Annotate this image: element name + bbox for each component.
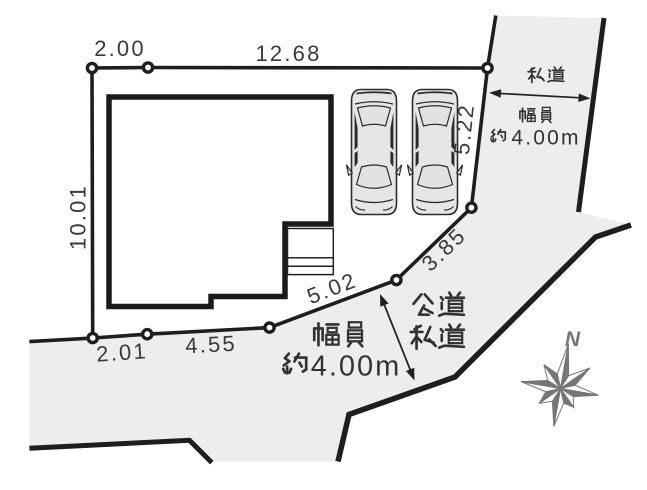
svg-text:2.00: 2.00 xyxy=(94,36,146,61)
svg-text:N: N xyxy=(565,328,581,351)
svg-text:5.22: 5.22 xyxy=(449,102,479,156)
svg-text:10.01: 10.01 xyxy=(66,184,91,250)
svg-text:4.00m: 4.00m xyxy=(311,351,402,383)
svg-text:12.68: 12.68 xyxy=(255,41,321,66)
svg-text:4.00m: 4.00m xyxy=(511,127,580,150)
svg-text:4.55: 4.55 xyxy=(185,331,238,359)
svg-text:2.01: 2.01 xyxy=(95,338,148,367)
